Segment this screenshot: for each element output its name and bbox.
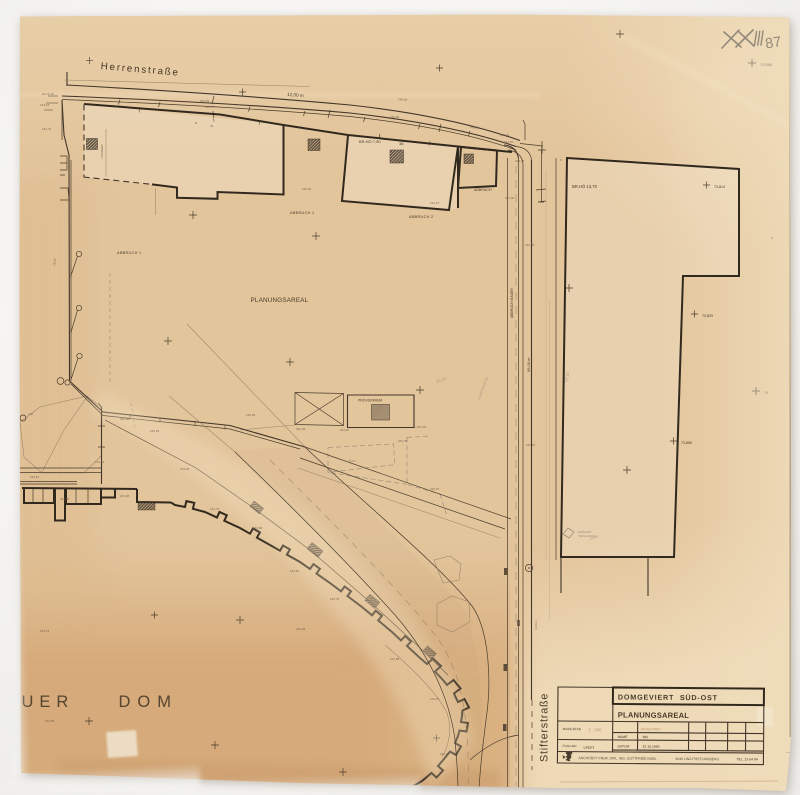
svg-text:DATUM: DATUM	[618, 744, 630, 748]
svg-text:ABBRUCH 1: ABBRUCH 1	[290, 211, 314, 215]
svg-text:+263,08: +263,08	[415, 425, 426, 429]
svg-text:163,80: 163,80	[253, 526, 263, 530]
svg-text:HAUPTPORTAL: HAUPTPORTAL	[477, 376, 489, 401]
svg-text:82,40: 82,40	[436, 376, 448, 384]
svg-text:DOMGEVIERT SÜD-OST: DOMGEVIERT SÜD-OST	[618, 692, 718, 702]
svg-text:164,08: 164,08	[440, 752, 450, 756]
svg-text:70,860: 70,860	[760, 62, 773, 67]
svg-text:NAME: NAME	[618, 735, 629, 739]
svg-text:263,60: 263,60	[340, 428, 350, 432]
svg-text:ARCHITEKT PROF. DIPL. ING. GOT: ARCHITEKT PROF. DIPL. ING. GOTTFRIED NOB…	[578, 756, 656, 761]
svg-text:MN: MN	[643, 735, 649, 739]
svg-text:4040 LINZ-PÖSTLINGBERG: 4040 LINZ-PÖSTLINGBERG	[675, 757, 719, 761]
svg-text:73,814: 73,814	[714, 185, 725, 189]
svg-text:163,40: 163,40	[302, 187, 312, 191]
svg-text:73,880: 73,880	[681, 441, 692, 445]
svg-text:164,63: 164,63	[150, 429, 160, 433]
svg-text:164,90: 164,90	[246, 413, 256, 417]
svg-text:ABBRUCH: ABBRUCH	[100, 144, 104, 159]
svg-text:Stifterstraße: Stifterstraße	[539, 693, 551, 762]
svg-text:PROVISORIUM: PROVISORIUM	[358, 399, 382, 403]
svg-text:166,80: 166,80	[390, 115, 400, 119]
svg-text:BR.HÖ 13,70: BR.HÖ 13,70	[572, 184, 598, 189]
svg-text:12,00 m: 12,00 m	[287, 92, 304, 98]
svg-text:162,75: 162,75	[526, 443, 536, 447]
svg-text:163,48: 163,48	[296, 627, 306, 631]
svg-text:263,?8: 263,?8	[398, 439, 408, 443]
svg-text:22.10.1990: 22.10.1990	[643, 745, 660, 749]
svg-text:163,98: 163,98	[120, 494, 130, 498]
svg-text:263,98: 263,98	[505, 196, 515, 200]
svg-text:Herrenstraße: Herrenstraße	[100, 61, 180, 79]
svg-text:TEL. 23 64 84: TEL. 23 64 84	[736, 757, 757, 761]
svg-text:LINZ/1: LINZ/1	[584, 746, 595, 750]
svg-text:ABBRUCH 1: ABBRUCH 1	[117, 251, 141, 255]
svg-text:164,58: 164,58	[45, 719, 55, 723]
svg-text:549,87: 549,87	[470, 125, 480, 130]
svg-text:DOM: DOM	[119, 693, 179, 711]
svg-text:ABBRUCH MAUER: ABBRUCH MAUER	[510, 288, 514, 318]
svg-text:ABBRUCH: ABBRUCH	[474, 188, 492, 192]
svg-text:56,00 m: 56,00 m	[526, 357, 531, 372]
svg-text:163,75: 163,75	[430, 697, 440, 701]
svg-text:36: 36	[210, 124, 214, 128]
svg-text:76: 76	[764, 391, 768, 395]
svg-text:163,07: 163,07	[430, 201, 440, 205]
svg-text:164,81: 164,81	[30, 475, 40, 479]
svg-text:1 : 200: 1 : 200	[589, 727, 603, 732]
svg-text:166,74: 166,74	[205, 105, 215, 109]
svg-text:GEZEICHNET: GEZEICHNET	[641, 727, 662, 731]
svg-text:166,80: 166,80	[398, 97, 408, 102]
svg-text:164,75: 164,75	[42, 127, 52, 131]
svg-text:549,99: 549,99	[200, 99, 210, 103]
svg-text:+62: +62	[28, 412, 33, 416]
svg-text:38: 38	[399, 141, 404, 146]
svg-text:240,97: 240,97	[430, 487, 440, 491]
svg-text:463,80: 463,80	[60, 497, 70, 501]
svg-text:KANAL: KANAL	[534, 620, 538, 630]
svg-text:260,08: 260,08	[296, 427, 306, 431]
svg-text:PLAN-NR: PLAN-NR	[563, 744, 578, 748]
svg-text:PLANUNGSAREAL: PLANUNGSAREAL	[618, 710, 690, 720]
svg-text:PLANUNGSAREAL: PLANUNGSAREAL	[251, 297, 309, 304]
svg-text:164,84: 164,84	[95, 460, 105, 464]
svg-text:UER: UER	[22, 693, 75, 711]
svg-text:164,75: 164,75	[210, 507, 220, 511]
svg-text:73,829: 73,829	[702, 314, 713, 318]
svg-text:16,37: 16,37	[52, 258, 57, 266]
svg-text:164,62: 164,62	[290, 569, 300, 573]
svg-text:263,48: 263,48	[515, 159, 525, 163]
svg-text:164,68: 164,68	[390, 657, 400, 661]
svg-text:ABBRUCH 2: ABBRUCH 2	[409, 215, 433, 219]
svg-text:166,98: 166,98	[120, 417, 130, 421]
svg-text:163,08: 163,08	[525, 243, 535, 247]
svg-text:154,25: 154,25	[180, 467, 190, 471]
svg-text:166,75: 166,75	[330, 597, 340, 601]
svg-text:87: 87	[764, 34, 782, 52]
svg-text:164,87: 164,87	[504, 140, 514, 144]
svg-text:164,18: 164,18	[40, 103, 50, 107]
svg-text:263,63: 263,63	[500, 133, 510, 137]
svg-text:BR.HÖ 7,50: BR.HÖ 7,50	[359, 139, 381, 144]
svg-text:164,13: 164,13	[40, 629, 50, 633]
svg-text:Hs.Nr.18: Hs.Nr.18	[42, 92, 54, 96]
svg-text:MASS-STAB: MASS-STAB	[563, 727, 581, 731]
